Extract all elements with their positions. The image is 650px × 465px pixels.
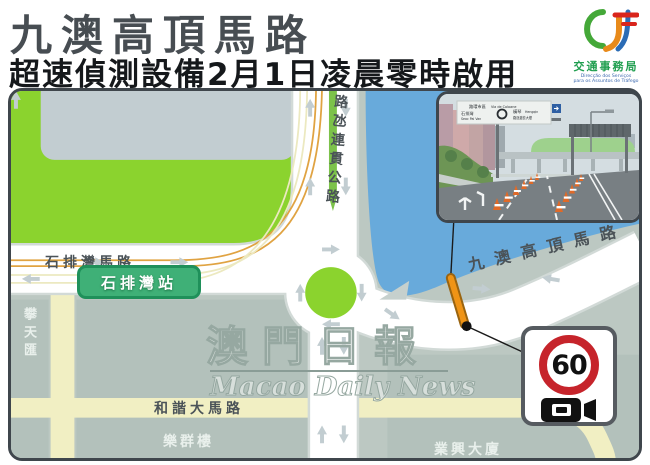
road-label-harmonia: 和諧大馬路 (154, 398, 244, 418)
infographic: 九澳高頂馬路 超速偵測設備2月1日凌晨零時啟用 交通事務局 Direcção d… (0, 0, 650, 465)
green-dome-roof (531, 138, 635, 152)
sign-text-right-2: 路氹邊檢大樓 (513, 115, 533, 120)
sign-text-right-pt: Hengqin (525, 110, 538, 114)
sign-text-top: 路環市區 (469, 103, 486, 110)
watermark-english: Macao Daily News (210, 372, 475, 402)
dsat-logo-mark (573, 4, 639, 54)
sign-text-left: 石排灣 (461, 110, 474, 117)
building-label-lok-kuan: 樂群樓 (163, 431, 214, 451)
speed-limit-value: 60 (551, 350, 587, 381)
dsat-org-name: 交通事務局 (566, 58, 646, 74)
roundabout-island (305, 267, 357, 318)
camera-location-dot (462, 321, 472, 331)
station-badge: 石排灣站 (77, 265, 201, 299)
speed-limit-sign: 60 (521, 326, 617, 426)
watermark-chinese: 澳門日報 (206, 313, 430, 374)
sign-text-left-pt: Seac Pai Van (461, 117, 481, 121)
dsat-logo: 交通事務局 Direcção dos Serviços para os Assu… (566, 4, 646, 85)
photo-illustration: 路環市區 Via de Coloane 石排灣 Seac Pai Van 橫琴 … (439, 94, 639, 220)
building-label-pan-tin-wui: 攀天匯 (19, 307, 38, 361)
gray-block (41, 91, 296, 160)
photo-inset: 路環市區 Via de Coloane 石排灣 Seac Pai Van 橫琴 … (436, 91, 642, 223)
dsat-org-name-pt-2: para os Assuntos de Tráfego (566, 79, 646, 84)
sign-text-right: 橫琴 (513, 108, 522, 115)
building-label-ip-heng: 業興大廈 (434, 439, 502, 459)
speed-camera-icon (540, 397, 598, 423)
speed-limit-ring: 60 (539, 335, 599, 395)
